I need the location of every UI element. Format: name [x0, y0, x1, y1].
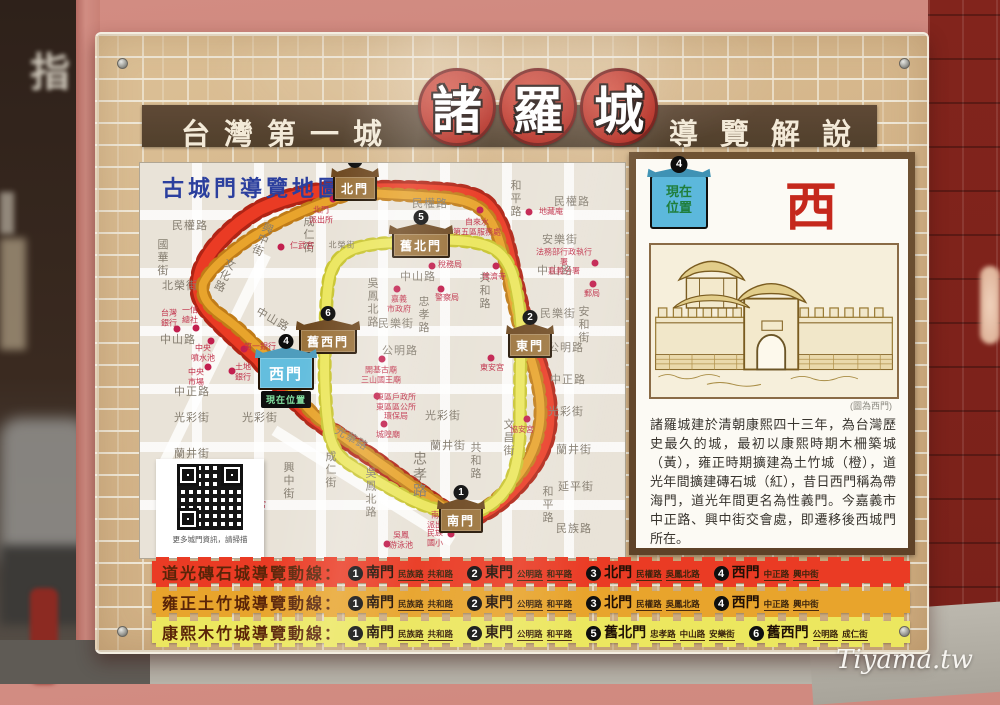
stop-gate-name: 南門: [366, 592, 394, 612]
stop-gate-name: 舊北門: [604, 622, 646, 642]
poi-label: 協安宮: [510, 425, 534, 435]
screw-icon: [117, 626, 128, 637]
route-bar-label: 道光磚石城導覽動線：: [162, 560, 342, 584]
street-name: 成仁街: [842, 629, 868, 641]
stop-streets: 公明路和平路: [517, 564, 576, 582]
gate-name: 東門: [516, 339, 544, 353]
street-label: 北榮街: [329, 240, 356, 251]
stop-number-badge: 4: [714, 596, 729, 611]
poi-dot: [278, 244, 285, 251]
route-stop: 1南門民族路共和路: [348, 562, 457, 582]
poi-dot: [590, 281, 597, 288]
map-gate: 5 舊北門: [392, 232, 450, 258]
route-bar-kangxi: 康熙木竹城導覽動線： 1南門民族路共和路2東門公明路和平路5舊北門忠孝路中山路安…: [152, 621, 910, 643]
poi-label: 一信 總社: [182, 305, 198, 324]
poi-dot: [193, 325, 200, 332]
poi-dot: [524, 416, 531, 423]
stop-number-badge: 1: [348, 596, 363, 611]
poi-label: 吳鳳 游泳池: [389, 530, 413, 549]
street-label: 忠孝路: [410, 451, 430, 499]
route-stop: 2東門公明路和平路: [467, 622, 576, 642]
poi-label: 中央 噴水池: [191, 343, 215, 362]
route-stop: 3北門民權路吳鳳北路: [586, 562, 704, 582]
stop-streets: 公明路和平路: [517, 594, 576, 612]
partial-character: 指: [30, 40, 70, 98]
poi-label: 東區戶政所 東區區公所 環保局: [376, 393, 416, 422]
route-bar-daoguang: 道光磚石城導覽動線： 1南門民族路共和路2東門公明路和平路3北門民權路吳鳳北路4…: [152, 561, 910, 583]
stop-number-badge: 1: [348, 626, 363, 641]
stop-streets: 民權路吳鳳北路: [636, 594, 704, 612]
poi-dot: [205, 364, 212, 371]
title-seal: 城: [580, 68, 658, 146]
map-title: 古城門導覽地圖: [162, 171, 344, 203]
street-label: 光彩街: [174, 409, 210, 425]
street-name: 吳鳳北路: [666, 569, 700, 581]
poi-dot: [477, 207, 484, 214]
street-label: 光彩街: [425, 407, 461, 423]
screw-icon: [899, 58, 910, 69]
route-stop: 6舊西門公明路成仁街: [749, 622, 872, 642]
route-stop: 4西門中正路興中街: [714, 592, 823, 612]
poi-label: 北門 派出所: [309, 205, 333, 224]
street-name: 吳鳳北路: [666, 599, 700, 611]
poi-label: 自來水 第五區服務處: [453, 217, 501, 236]
sign-title-right: 導覽解說: [669, 111, 873, 153]
route-bar-label: 雍正土竹城導覽動線：: [162, 590, 342, 614]
poi-dot: [394, 286, 401, 293]
gate-name: 舊北門: [400, 239, 442, 253]
background-highlight: [0, 192, 14, 234]
gate-name: 西門: [269, 366, 303, 383]
poi-label: 稅務局: [438, 260, 462, 270]
street-name: 共和路: [428, 599, 454, 611]
information-sign: 台灣第一城 諸羅城 導覽解說 古城門導覽地圖 民權路國華街北榮街文化路興中街成仁…: [95, 32, 929, 654]
street-name: 中正路: [764, 569, 790, 581]
poi-dot: [526, 209, 533, 216]
street-name: 共和路: [428, 569, 454, 581]
street-name: 中正路: [764, 599, 790, 611]
street-label: 興中街: [280, 462, 296, 501]
street-name: 公明路: [517, 599, 543, 611]
seal-character: 城: [594, 71, 644, 143]
poi-label: 城隍廟: [376, 430, 400, 440]
street-label: 中山路: [400, 268, 436, 284]
street-label: 公明路: [382, 342, 418, 358]
poi-dot: [493, 263, 500, 270]
stop-streets: 公明路成仁街: [813, 624, 872, 642]
screw-icon: [899, 626, 910, 637]
street-name: 共和路: [428, 629, 454, 641]
gate-number-badge: 4: [671, 156, 688, 173]
current-location-label: 現在 位置: [652, 184, 706, 217]
poi-dot: [381, 421, 388, 428]
gate-number-badge: 1: [453, 485, 468, 500]
route-bar-label: 康熙木竹城導覽動線：: [162, 620, 342, 644]
stop-streets: 公明路和平路: [517, 624, 576, 642]
route-stop: 2東門公明路和平路: [467, 562, 576, 582]
route-legend: 道光磚石城導覽動線： 1南門民族路共和路2東門公明路和平路3北門民權路吳鳳北路4…: [152, 561, 910, 651]
gate-number-badge: 4: [278, 334, 293, 349]
sign-title-seals: 諸羅城: [418, 68, 658, 146]
poi-dot: [429, 263, 436, 270]
stop-streets: 中正路興中街: [764, 594, 823, 612]
street-name: 和平路: [547, 629, 573, 641]
current-location-gate-icon: 4 現在 位置: [650, 175, 708, 229]
street-label: 民權路: [412, 195, 448, 211]
street-label: 公明路: [548, 339, 584, 355]
street-label: 民權路: [172, 217, 208, 233]
poi-label: 東安宮: [480, 363, 504, 373]
route-stop: 4西門中正路興中街: [714, 562, 823, 582]
stop-gate-name: 西門: [732, 592, 760, 612]
street-label: 延平街: [558, 478, 594, 494]
poi-label: 郵局: [584, 289, 600, 299]
stop-gate-name: 舊西門: [767, 622, 809, 642]
stop-gate-name: 東門: [485, 592, 513, 612]
stop-number-badge: 4: [714, 566, 729, 581]
illustration-caption: (圖為西門): [850, 399, 892, 412]
poi-label: 嘉義 市政府: [387, 294, 411, 313]
seal-character: 諸: [432, 71, 482, 143]
qr-code: [177, 464, 243, 530]
street-label: 成仁街: [322, 451, 338, 490]
city-gate-map: 古城門導覽地圖 民權路國華街北榮街文化路興中街成仁街北榮街民權路和平路民權路安樂…: [139, 162, 626, 559]
qr-finder-icon: [221, 464, 243, 486]
stop-gate-name: 南門: [366, 562, 394, 582]
qr-caption: 更多城門資訊，請掃描: [162, 534, 258, 545]
poi-dot: [438, 286, 445, 293]
stop-streets: 民族路共和路: [398, 564, 457, 582]
poi-label: 地藏庵: [539, 207, 563, 217]
street-label: 共和路: [467, 442, 483, 481]
poi-dot: [488, 355, 495, 362]
stop-streets: 民權路吳鳳北路: [636, 564, 704, 582]
street-name: 公明路: [517, 569, 543, 581]
route-stop: 1南門民族路共和路: [348, 622, 457, 642]
street-name: 和平路: [547, 569, 573, 581]
poi-label: 土地 銀行: [235, 362, 251, 381]
stop-number-badge: 2: [467, 596, 482, 611]
street-label: 忠孝路: [415, 296, 431, 335]
poi-label: 普濟寺: [482, 272, 506, 282]
street-label: 光彩街: [242, 409, 278, 425]
stop-streets: 中正路興中街: [764, 564, 823, 582]
stop-gate-name: 東門: [485, 562, 513, 582]
stop-gate-name: 西門: [732, 562, 760, 582]
poi-label: 第一銀行: [244, 342, 276, 352]
route-bar-yongzheng: 雍正土竹城導覽動線： 1南門民族路共和路2東門公明路和平路3北門民權路吳鳳北路4…: [152, 591, 910, 613]
street-label: 光彩街: [548, 403, 584, 419]
stop-number-badge: 3: [586, 596, 601, 611]
gate-description: 諸羅城建於清朝康熙四十三年，為台灣歷史最久的城，最初以康熙時期木柵築城（黃），雍…: [650, 415, 896, 548]
poi-label: 台灣 銀行: [161, 308, 177, 327]
street-label: 民族路: [556, 520, 592, 536]
watermark: Tiyama.tw: [836, 645, 973, 675]
gate-info-card: 4 現在 位置 西門: [636, 159, 908, 548]
qr-finder-icon: [177, 464, 199, 486]
street-label: 和平路: [539, 486, 555, 525]
street-label: 吳鳳北路: [362, 467, 378, 519]
poi-label: 警察局: [435, 293, 459, 303]
street-name: 興中街: [793, 599, 819, 611]
gate-name: 北門: [341, 182, 369, 196]
stop-streets: 民族路共和路: [398, 624, 457, 642]
map-gate: 1 南門: [439, 507, 483, 533]
gate-number-badge: 5: [413, 210, 428, 225]
poi-label: 中央 市場: [188, 367, 204, 386]
gate-number-badge: 6: [320, 306, 335, 321]
stop-number-badge: 2: [467, 566, 482, 581]
street-name: 民權路: [636, 569, 662, 581]
poi-dot: [379, 356, 386, 363]
qr-card: 更多城門資訊，請掃描: [156, 459, 264, 559]
street-name: 民族路: [398, 599, 424, 611]
stop-number-badge: 3: [586, 566, 601, 581]
street-name: 公明路: [517, 629, 543, 641]
street-name: 安樂街: [709, 629, 735, 641]
route-stop: 2東門公明路和平路: [467, 592, 576, 612]
stop-gate-name: 南門: [366, 622, 394, 642]
stop-gate-name: 北門: [604, 592, 632, 612]
title-seal: 羅: [499, 68, 577, 146]
stop-number-badge: 1: [348, 566, 363, 581]
gate-number-badge: 2: [522, 310, 537, 325]
background-panel: [0, 238, 26, 350]
sign-title-left: 台灣第一城: [181, 111, 396, 153]
street-label: 蘭井街: [556, 441, 592, 457]
route-stop: 5舊北門忠孝路中山路安樂街: [586, 622, 739, 642]
street-name: 公明路: [813, 629, 839, 641]
street-label: 民樂街: [378, 315, 414, 331]
map-gate: 2 東門: [508, 332, 552, 358]
route-stop: 1南門民族路共和路: [348, 592, 457, 612]
stop-gate-name: 東門: [485, 622, 513, 642]
stop-gate-name: 北門: [604, 562, 632, 582]
street-name: 興中街: [793, 569, 819, 581]
poi-label: 仁武宮: [290, 241, 314, 251]
street-label: 蘭井街: [430, 437, 466, 453]
poi-label: 開基古廟 三山國王廟: [361, 365, 401, 384]
street-label: 北榮街: [162, 277, 198, 293]
street-name: 民權路: [636, 599, 662, 611]
stop-number-badge: 6: [749, 626, 764, 641]
street-label: 民樂街: [540, 305, 576, 321]
map-gate: 6 舊西門: [299, 328, 357, 354]
seal-character: 羅: [513, 71, 563, 143]
gate-name: 南門: [447, 514, 475, 528]
gate-name: 舊西門: [307, 335, 349, 349]
stop-number-badge: 2: [467, 626, 482, 641]
route-stop: 3北門民權路吳鳳北路: [586, 592, 704, 612]
street-name: 中山路: [680, 629, 706, 641]
street-name: 民族路: [398, 569, 424, 581]
street-name: 和平路: [547, 599, 573, 611]
screw-icon: [117, 58, 128, 69]
stop-streets: 忠孝路中山路安樂街: [650, 624, 739, 642]
map-gate: 4 西門 現在位置: [258, 356, 314, 390]
title-seal: 諸: [418, 68, 496, 146]
stop-streets: 民族路共和路: [398, 594, 457, 612]
street-label: 和平路: [507, 180, 523, 219]
stop-number-badge: 5: [586, 626, 601, 641]
person-arm: [980, 266, 1000, 344]
map-gate: 3 北門: [333, 175, 377, 201]
current-location-tag: 現在位置: [261, 391, 311, 408]
street-name: 民族路: [398, 629, 424, 641]
poi-label: 法務部行政執行署 嘉義分署: [534, 248, 595, 277]
qr-finder-icon: [177, 508, 199, 530]
street-name: 忠孝路: [650, 629, 676, 641]
gate-info-panel: 4 現在 位置 西門: [629, 152, 915, 555]
street-label: 中正路: [550, 371, 586, 387]
street-label: 安樂街: [542, 231, 578, 247]
street-label: 國華街: [154, 239, 170, 278]
gate-illustration: [649, 243, 899, 399]
